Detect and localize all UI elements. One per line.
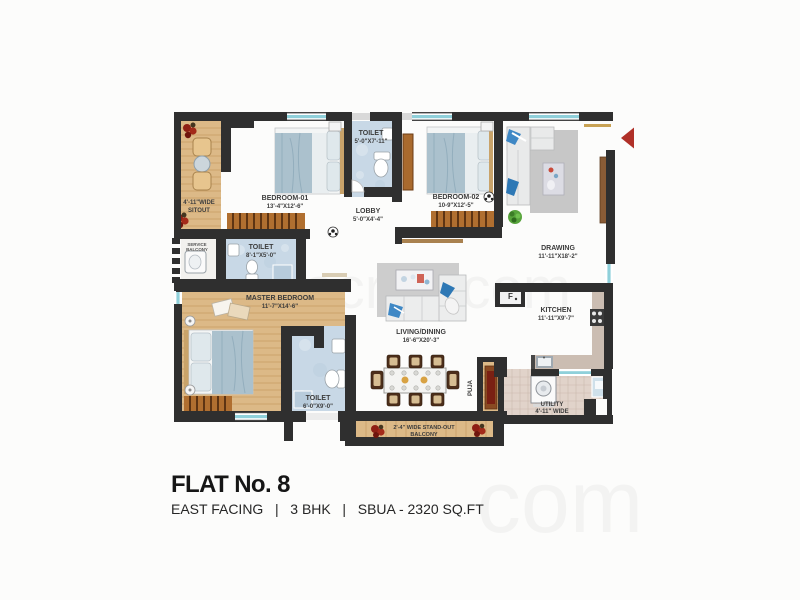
svg-text:TOILET: TOILET [306, 395, 331, 402]
svg-text:LOBBY: LOBBY [356, 208, 381, 215]
svg-text:4'-11" WIDE: 4'-11" WIDE [535, 409, 568, 415]
svg-text:FLAT No. 8: FLAT No. 8 [171, 471, 290, 498]
svg-text:BALCONY: BALCONY [186, 247, 208, 252]
svg-text:6'-0"X9'-0": 6'-0"X9'-0" [303, 404, 333, 410]
svg-text:SITOUT: SITOUT [188, 208, 210, 214]
svg-text:com: com [477, 452, 643, 551]
svg-text:8'-1"X5'-0": 8'-1"X5'-0" [246, 253, 276, 259]
svg-text:11'-11"X18'-2": 11'-11"X18'-2" [538, 254, 577, 260]
svg-text:BEDROOM-01: BEDROOM-01 [262, 195, 309, 202]
svg-text:BALCONY: BALCONY [410, 432, 438, 438]
svg-text:5'-0"X7'-11": 5'-0"X7'-11" [355, 139, 388, 145]
svg-text:EAST FACING | 3 BHK |: EAST FACING | 3 BHK | SBUA - 2320 SQ.FT [171, 501, 484, 517]
svg-text:UTILITY: UTILITY [541, 402, 564, 408]
svg-text:5'-0"X4'-4": 5'-0"X4'-4" [353, 217, 383, 223]
svg-text:2'-4" WIDE STAND-OUT: 2'-4" WIDE STAND-OUT [393, 425, 455, 431]
svg-text:DRAWING: DRAWING [541, 245, 575, 252]
svg-text:10-9"X12'-5": 10-9"X12'-5" [438, 203, 473, 209]
svg-text:KITCHEN: KITCHEN [540, 307, 571, 314]
svg-text:LIVING/DINING: LIVING/DINING [396, 329, 446, 336]
svg-text:MASTER BEDROOM: MASTER BEDROOM [246, 295, 314, 302]
svg-text:PUJA: PUJA [468, 379, 474, 396]
svg-text:F: F [508, 292, 513, 301]
svg-text:TOILET: TOILET [359, 130, 384, 137]
svg-text:11'-7"X14'-6": 11'-7"X14'-6" [262, 304, 298, 310]
svg-text:13'-4"X12'-6": 13'-4"X12'-6" [267, 204, 304, 210]
svg-text:11'-11"X9'-7": 11'-11"X9'-7" [538, 316, 574, 322]
svg-text:TOILET: TOILET [249, 244, 274, 251]
svg-text:16'-6"X20'-3": 16'-6"X20'-3" [403, 338, 440, 344]
svg-text:BEDROOM-02: BEDROOM-02 [433, 194, 480, 201]
svg-text:4'-11"WIDE: 4'-11"WIDE [183, 200, 215, 206]
